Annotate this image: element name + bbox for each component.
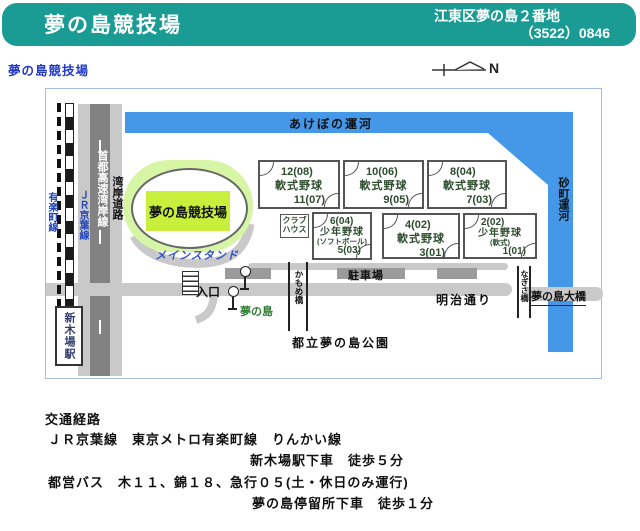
field-box-8: 8(04) 軟式野球 7(03) <box>427 160 507 209</box>
diamond-arc-icon <box>465 215 479 229</box>
access-bus-lines: 都営バス 木１１、錦１８、急行０５(土・休日のみ運行) <box>48 472 409 491</box>
field-type: 軟式野球 <box>429 179 505 193</box>
parking-strip-2 <box>437 268 477 279</box>
field-number: 6(04) <box>330 217 370 228</box>
field-number: 5(03) <box>314 246 361 257</box>
field-number: 8(04) <box>450 165 505 179</box>
diamond-arc-icon <box>345 162 359 176</box>
field-number: 9(05) <box>345 193 409 207</box>
field-box-6: 6(04) 少年野球 (ソフトボール) 5(03) <box>312 212 372 260</box>
field-number: 1(01) <box>465 247 526 258</box>
yurakucho-line-label: 有楽町線 <box>44 192 59 232</box>
header-phone: （3522）0846 <box>520 23 610 43</box>
entrance-label: 入口 <box>196 283 220 300</box>
diamond-arc-icon <box>384 215 398 229</box>
busstop-sign-pole-2 <box>232 297 234 308</box>
field-number: 12(08) <box>281 165 338 179</box>
north-label: N <box>489 60 499 76</box>
diamond-arc-icon <box>260 162 274 176</box>
field-number: 2(02) <box>481 218 535 229</box>
jr-keiyo-line-label: ＪＲ京葉線 <box>75 190 90 240</box>
kamome-bridge-line <box>306 262 308 331</box>
access-rail-lines: ＪＲ京葉線 東京メトロ有楽町線 りんかい線 <box>48 429 342 448</box>
field-number: 3(01) <box>384 246 445 259</box>
field-box-2: 2(02) 少年野球 (軟式) 1(01) <box>463 213 537 259</box>
stadium-name-label: 夢の島競技場 <box>149 202 227 221</box>
diamond-arc-icon <box>324 193 338 207</box>
field-number: 4(02) <box>405 218 458 232</box>
busstop-sign-base <box>240 288 249 290</box>
akebono-canal-label: あけぼの運河 <box>289 115 373 132</box>
diamond-arc-icon <box>408 193 422 207</box>
field-number: 10(06) <box>366 165 422 179</box>
access-rail-walk: 新木場駅下車 徒歩５分 <box>250 450 404 469</box>
access-heading: 交通経路 <box>45 409 101 428</box>
field-type: 軟式野球 <box>260 179 338 193</box>
field-number: 11(07) <box>260 193 325 207</box>
busstop-sign-icon-2 <box>228 286 239 297</box>
busstop-sign-base-2 <box>228 308 237 310</box>
clubhouse-label: クラブ <box>281 216 308 225</box>
stadium-field: 夢の島競技場 <box>146 191 230 231</box>
field-box-4: 4(02) 軟式野球 3(01) <box>382 213 460 259</box>
shinkiba-station-box: 新木場駅 <box>55 306 83 366</box>
shuto-expressway-label: 首都高速湾岸線 <box>94 150 110 227</box>
clubhouse-label: ハウス <box>281 225 308 234</box>
ohashi-bridge-label: 夢の島大橋 <box>531 288 586 306</box>
kamome-bridge-line <box>288 262 290 331</box>
jr-keiyo-line <box>65 103 74 308</box>
busstop-sign-icon <box>240 266 251 277</box>
field-box-12: 12(08) 軟式野球 11(07) <box>258 160 340 209</box>
nagisa-bridge-label: なぎさ橋 <box>519 270 530 302</box>
meiji-street-label: 明治通り <box>436 291 492 308</box>
field-box-10: 10(06) 軟式野球 9(05) <box>343 160 424 209</box>
parking-label: 駐車場 <box>348 267 384 283</box>
sunamachi-canal-label: 砂町運河 <box>555 177 571 221</box>
park-name-label: 都立夢の島公園 <box>292 334 390 351</box>
kamome-bridge-label: かもめ橋 <box>293 270 305 304</box>
field-number: 7(03) <box>429 193 492 207</box>
diamond-arc-icon <box>491 193 505 207</box>
busstop-sign-pole <box>244 277 246 288</box>
diamond-arc-icon <box>314 214 328 228</box>
map-title-label: 夢の島競技場 <box>8 60 89 79</box>
shinkiba-station-label: 新木場駅 <box>61 312 77 360</box>
clubhouse-box: クラブ ハウス <box>280 214 309 238</box>
expressway-center-line <box>99 104 101 376</box>
access-bus-walk: 夢の島停留所下車 徒歩１分 <box>252 493 434 512</box>
main-stand-label: メインスタンド <box>155 247 239 263</box>
wangan-road-label: 湾岸道路 <box>109 176 125 220</box>
diamond-arc-icon <box>429 162 443 176</box>
field-type: 軟式野球 <box>345 179 422 193</box>
yumenoshima-busstop-label: 夢の島 <box>240 303 273 319</box>
field-type: 軟式野球 <box>384 232 458 246</box>
page-title: 夢の島競技場 <box>44 9 182 39</box>
